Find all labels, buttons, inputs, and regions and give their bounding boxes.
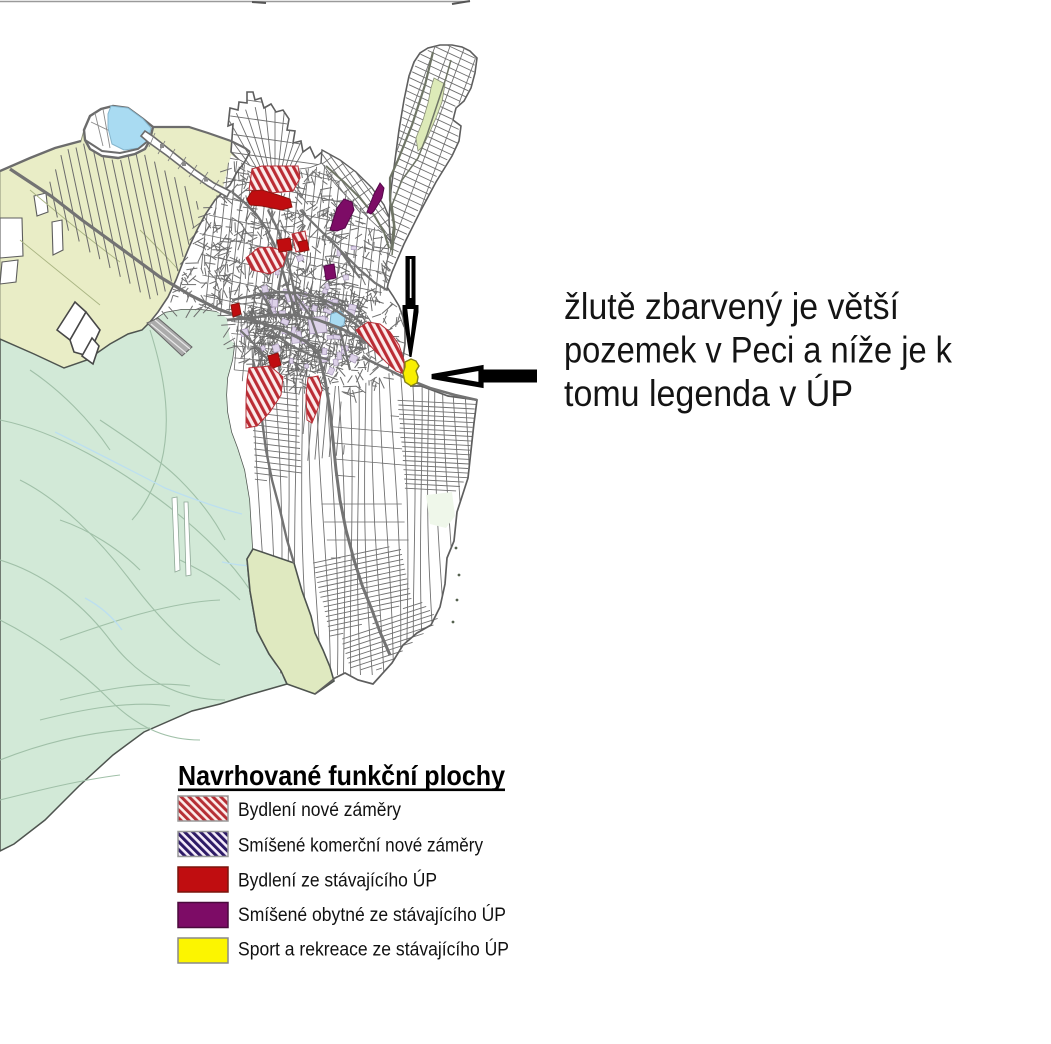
svg-text:pozemek v Peci a níže je k: pozemek v Peci a níže je k — [564, 330, 952, 371]
svg-text:Smíšené obytné ze stávajícího: Smíšené obytné ze stávajícího ÚP — [238, 903, 506, 926]
svg-text:Bydlení nové záměry: Bydlení nové záměry — [238, 799, 401, 821]
svg-text:Sport a rekreace ze stávajícíh: Sport a rekreace ze stávajícího ÚP — [238, 938, 509, 961]
svg-text:žlutě zbarvený je větší: žlutě zbarvený je větší — [564, 286, 900, 327]
svg-text:Navrhované funkční plochy: Navrhované funkční plochy — [178, 760, 505, 791]
svg-text:Bydlení ze stávajícího ÚP: Bydlení ze stávajícího ÚP — [238, 869, 437, 892]
svg-text:Smíšené komerční nové záměry: Smíšené komerční nové záměry — [238, 835, 483, 857]
svg-text:tomu legenda v ÚP: tomu legenda v ÚP — [564, 373, 853, 414]
